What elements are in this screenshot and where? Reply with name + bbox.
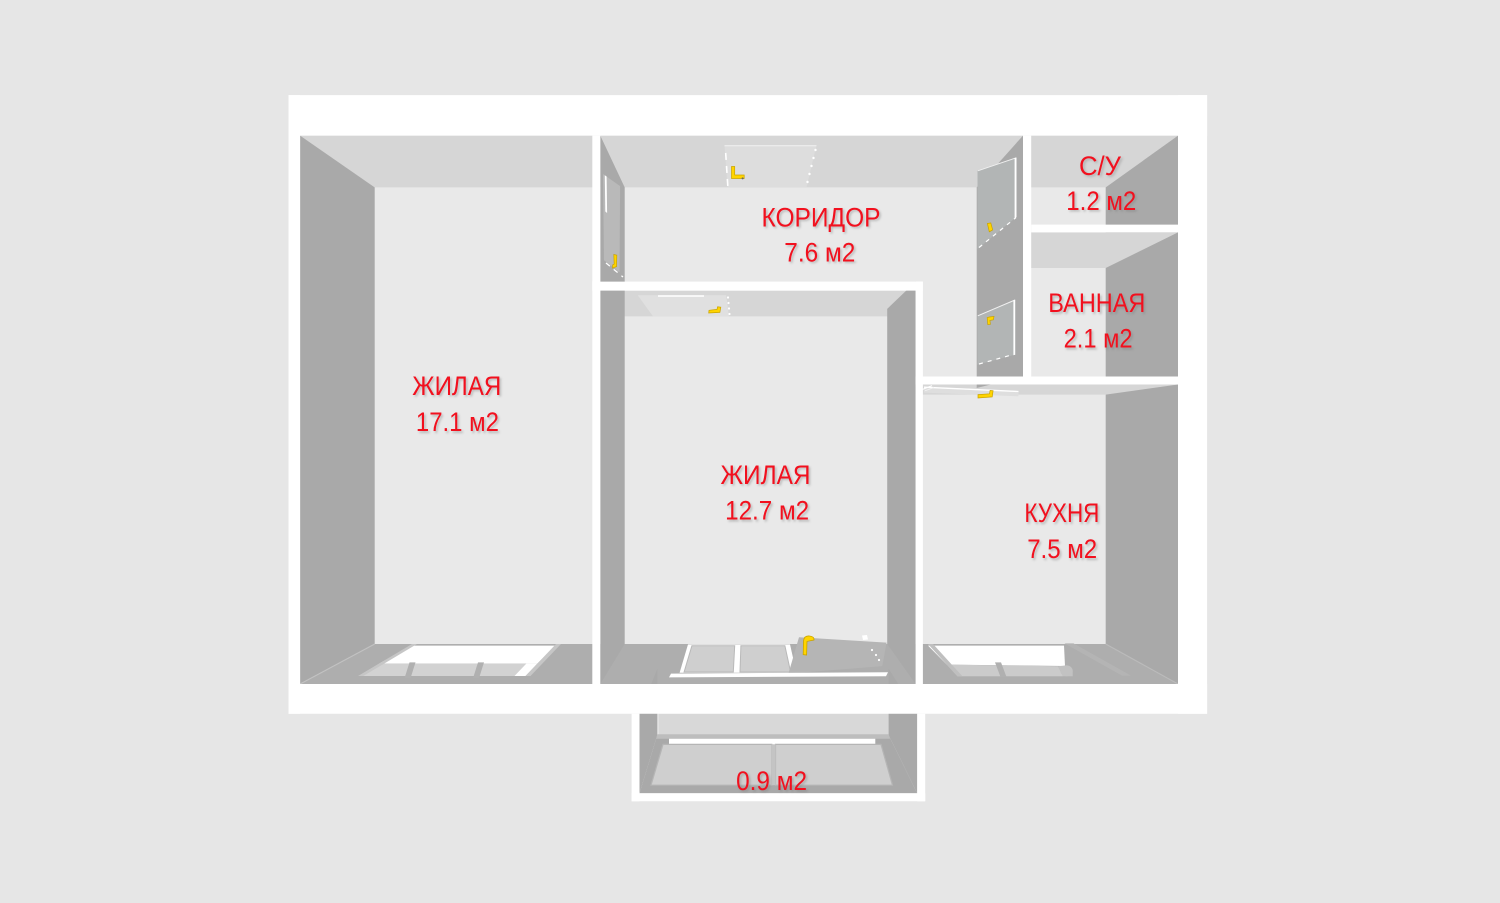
svg-text:17.1 м2: 17.1 м2 — [416, 407, 499, 437]
svg-text:1.2 м2: 1.2 м2 — [1066, 186, 1136, 216]
svg-text:ЖИЛАЯ: ЖИЛАЯ — [721, 460, 811, 490]
svg-text:0.9 м2: 0.9 м2 — [736, 766, 807, 796]
svg-text:КУХНЯ: КУХНЯ — [1024, 498, 1099, 528]
svg-text:12.7 м2: 12.7 м2 — [725, 496, 809, 526]
svg-text:КОРИДОР: КОРИДОР — [762, 202, 881, 232]
svg-text:ЖИЛАЯ: ЖИЛАЯ — [412, 371, 501, 401]
svg-text:7.5 м2: 7.5 м2 — [1027, 534, 1097, 564]
svg-text:С/У: С/У — [1079, 151, 1122, 181]
svg-text:2.1 м2: 2.1 м2 — [1064, 324, 1133, 354]
svg-text:ВАННАЯ: ВАННАЯ — [1048, 288, 1145, 318]
svg-text:7.6 м2: 7.6 м2 — [784, 237, 855, 267]
